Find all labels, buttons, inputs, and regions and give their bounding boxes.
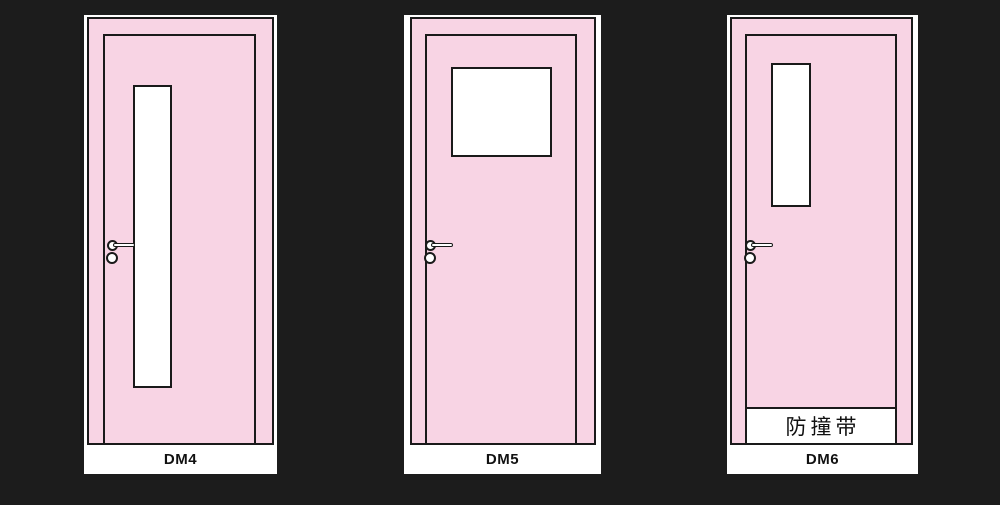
door-code-text: DM6 [806, 451, 839, 468]
door-code-label: DM4 [84, 445, 277, 474]
door-lock-icon [744, 252, 756, 264]
door-leaf [745, 34, 897, 443]
door-code-text: DM4 [164, 451, 197, 468]
door-unit-dm6: 防撞带 DM6 [727, 15, 918, 474]
door-unit-dm4: DM4 [84, 15, 277, 474]
door-code-text: DM5 [486, 451, 519, 468]
door-code-label: DM5 [404, 445, 601, 474]
anti-collision-strip-text: 防撞带 [782, 411, 861, 441]
door-lock-icon [106, 252, 118, 264]
anti-collision-strip: 防撞带 [745, 407, 897, 445]
door-handle-lever-icon [751, 243, 773, 247]
door-handle-lever-icon [431, 243, 453, 247]
door-leaf [103, 34, 256, 443]
door-diagram-canvas: DM4 DM5 防撞带 DM6 [0, 0, 1000, 505]
glass-window [771, 63, 811, 207]
door-code-label: DM6 [727, 445, 918, 474]
door-handle-lever-icon [113, 243, 135, 247]
door-lock-icon [424, 252, 436, 264]
glass-window [133, 85, 172, 388]
door-unit-dm5: DM5 [404, 15, 601, 474]
glass-window [451, 67, 552, 157]
